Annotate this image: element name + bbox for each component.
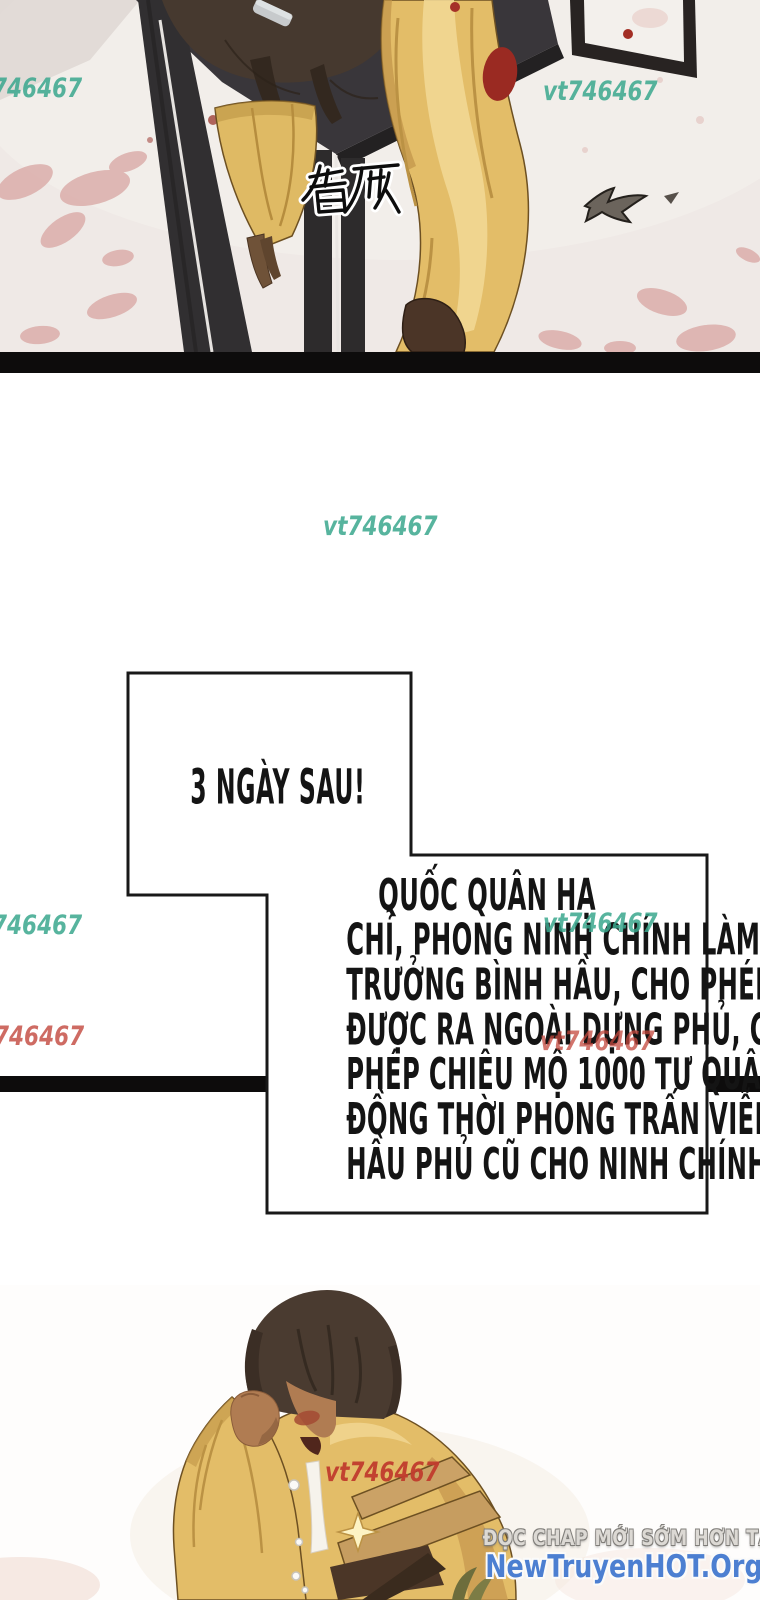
watermark: vt746467 — [323, 512, 438, 542]
footer-site-name: NewTruyenHOT.Org — [485, 1549, 715, 1585]
speech-balloon — [0, 640, 760, 1240]
fist — [231, 1391, 279, 1447]
comic-page: 昏厥 3 NGÀY SAU! QUỐC QUÂN HẠ CHỈ, PHONG N… — [0, 0, 760, 1600]
footer-tagline: ĐỌC CHAP MỚI SỚM HƠN TẠI — [483, 1526, 715, 1550]
top-panel-artwork — [0, 0, 760, 352]
panel-separator-bar — [0, 352, 760, 373]
